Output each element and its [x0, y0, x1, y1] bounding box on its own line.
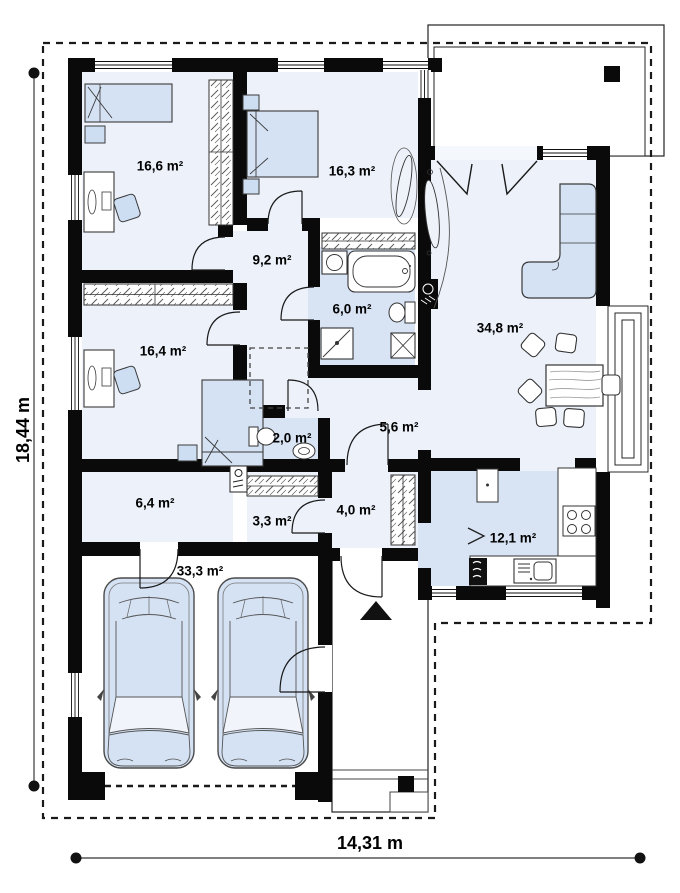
room-area-label: 6,4 m²	[135, 496, 175, 511]
toilet-icon	[249, 427, 275, 446]
room-area-label: 2,0 m²	[272, 431, 312, 446]
stove-icon	[563, 506, 595, 536]
terrace-column	[604, 66, 620, 82]
room-area-label: 3,3 m²	[252, 514, 292, 529]
floor-plan-drawing: 16,6 m² 16,3 m² 9,2 m² 6,0 m² 34,8 m² 16…	[0, 0, 680, 893]
window	[68, 175, 82, 220]
toilet-icon	[389, 302, 415, 323]
desk-icon	[84, 350, 114, 407]
nightstand-icon	[178, 445, 197, 461]
chair-icon	[535, 407, 556, 427]
window	[383, 58, 428, 72]
window	[543, 146, 587, 160]
room-area-label: 5,6 m²	[379, 420, 419, 435]
room-area-label: 16,3 m²	[329, 164, 376, 179]
terrace	[428, 25, 664, 156]
shower-icon	[321, 328, 353, 359]
room-area-label: 6,0 m²	[332, 302, 372, 317]
bed-icon	[85, 84, 172, 122]
room-area-label: 12,1 m²	[490, 531, 537, 546]
window	[68, 337, 82, 410]
wardrobe-icon	[247, 476, 318, 496]
wardrobe-icon	[322, 233, 415, 249]
window	[418, 70, 431, 98]
porch-column	[398, 776, 414, 792]
dimension-width: 14,31 m	[71, 833, 646, 864]
chair-icon	[563, 408, 584, 427]
room-area-label: 16,6 m²	[137, 159, 184, 174]
window	[506, 586, 582, 600]
floor-plan: 16,6 m² 16,3 m² 9,2 m² 6,0 m² 34,8 m² 16…	[0, 0, 680, 893]
nightstand-icon	[243, 179, 259, 194]
room-area-label: 33,3 m²	[177, 564, 224, 579]
vent-icon	[230, 466, 247, 492]
entrance-porch	[332, 555, 428, 812]
kitchen-table-icon	[477, 469, 498, 502]
width-dimension-label: 14,31 m	[337, 833, 403, 853]
washing-machine-icon	[391, 333, 415, 358]
room-area-label: 34,8 m²	[477, 321, 524, 336]
car-icon	[97, 578, 201, 768]
bathtub-icon	[348, 251, 415, 292]
wardrobe-icon	[391, 475, 415, 545]
window	[278, 58, 324, 72]
window	[95, 58, 172, 72]
sink-icon	[322, 251, 347, 274]
wardrobe-icon	[84, 284, 233, 305]
sink-icon	[514, 559, 556, 583]
chair-icon	[555, 333, 577, 354]
wardrobe-icon	[209, 80, 233, 225]
radiator-icon	[469, 558, 487, 585]
bed-icon	[202, 380, 263, 466]
room-area-label: 16,4 m²	[140, 344, 187, 359]
nightstand-icon	[85, 126, 105, 143]
height-dimension-label: 18,44 m	[13, 397, 33, 463]
window	[432, 586, 456, 600]
dining-table-icon	[546, 365, 603, 406]
room-area-label: 4,0 m²	[336, 503, 376, 518]
car-icon	[211, 578, 315, 768]
desk-icon	[84, 172, 114, 232]
nightstand-icon	[243, 95, 259, 110]
chair-icon	[602, 375, 620, 395]
room-area-label: 9,2 m²	[252, 253, 292, 268]
bed-icon	[247, 111, 318, 177]
dimension-height: 18,44 m	[13, 68, 40, 792]
window	[68, 673, 82, 717]
